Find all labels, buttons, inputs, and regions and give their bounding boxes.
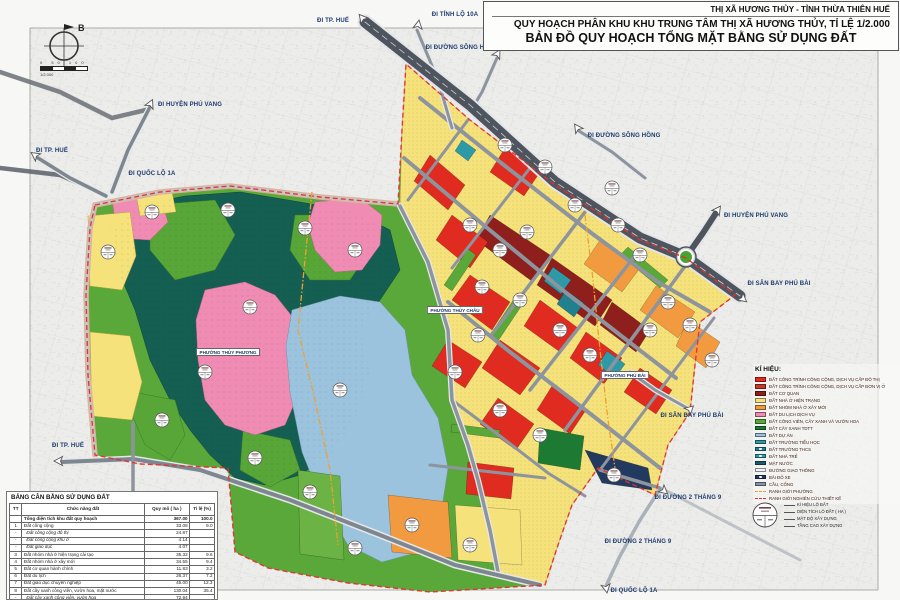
legend-item: ĐƯỜNG GIAO THÔNG — [755, 467, 900, 474]
road-label-song-hong-right: ĐI ĐƯỜNG SÔNG HỒNG — [588, 133, 661, 139]
lot-symbol — [348, 243, 362, 257]
lot-symbol — [471, 328, 485, 342]
lot-symbol — [583, 348, 597, 362]
lot-symbol — [513, 293, 527, 307]
lot-symbol — [661, 295, 675, 309]
lot-symbol — [607, 468, 621, 482]
road-label-phu-vang-top: ĐI HUYỆN PHÚ VANG — [158, 102, 222, 108]
road-label-tp-hue-left: ĐI TP. HUẾ — [36, 148, 68, 154]
legend-title: KÍ HIỆU: — [755, 366, 900, 373]
table-row: 7Đất giáo dục chuyên nghiệp45.0012.3 — [10, 580, 215, 587]
legend-swatch-bridge — [755, 482, 766, 487]
legend-item: ĐẤT DU LỊCH DỊCH VỤ — [755, 411, 900, 418]
road-label-ql1a-left: ĐI QUỐC LỘ 1A — [129, 171, 176, 177]
legend-swatch-parking-icon — [755, 475, 766, 480]
table-row: 6Đất du lịch26.377.2 — [10, 573, 215, 580]
lot-symbol — [643, 323, 657, 337]
legend-swatch — [755, 384, 766, 389]
legend-item: ĐẤT CÔNG TRÌNH CÔNG CỘNG, DỊCH VỤ CẤP ĐƠ… — [755, 383, 900, 390]
table-row: -Đất công cộng đô thị24.87 — [10, 530, 215, 537]
lot-symbol — [298, 221, 312, 235]
legend-item: CẦU, CỐNG — [755, 481, 900, 488]
road-label-ql1a-bottom: ĐI QUỐC LỘ 1A — [611, 588, 658, 594]
lot-symbol-legend: KÍ HIỆU LÔ ĐẤT DIỆN TÍCH LÔ ĐẤT ( HA ) M… — [750, 500, 846, 530]
lot-symbol — [155, 413, 169, 427]
lot-symbol — [198, 365, 212, 379]
legend-item: ĐẤT CÔNG VIÊN, CÂY XANH VÀ VƯỜN HOA — [755, 418, 900, 425]
legend-item: ĐẤT NHÓM NHÀ Ở XÂY MỚI — [755, 404, 900, 411]
lot-symbol — [520, 225, 534, 239]
road-label-tp-hue-top: ĐI TP. HUẾ — [317, 18, 349, 24]
lot-symbol — [493, 403, 507, 417]
lot-symbol — [405, 518, 419, 532]
scale-ticks: 0 50 100 — [40, 60, 88, 65]
lot-symbol — [611, 218, 625, 232]
lot-code-label: KÍ HIỆU LÔ ĐẤT — [784, 502, 846, 509]
table-title: BẢNG CÂN BẰNG SỬ DỤNG ĐẤT — [11, 494, 215, 501]
lot-symbol — [463, 538, 477, 552]
road-label-san-bay-2: ĐI SÂN BAY PHÚ BÀI — [660, 413, 723, 419]
table-row: 8Đất cây xanh công viên, vườn hoa, mặt n… — [10, 587, 215, 594]
province-title: THỊ XÃ HƯƠNG THỦY - TỈNH THỪA THIÊN HUẾ — [492, 5, 890, 17]
road-label-phu-vang-right: ĐI HUYỆN PHÚ VANG — [724, 213, 788, 219]
table-row: -Đất giáo dục4.07 — [10, 544, 215, 551]
legend-item: MẶT NƯỚC — [755, 460, 900, 467]
north-label: B — [78, 23, 85, 33]
lot-symbol — [633, 248, 647, 262]
road-label-2thang9-1: ĐI ĐƯỜNG 2 THÁNG 9 — [655, 495, 722, 501]
legend-swatch — [755, 461, 766, 466]
legend-swatch — [755, 405, 766, 410]
table-header-row: TT Chức năng đất Quy mô ( ha ) Tỉ lệ (%) — [10, 504, 215, 516]
plan-title: QUY HOẠCH PHÂN KHU KHU TRUNG TÂM THỊ XÃ … — [492, 19, 890, 30]
scale-bar: 0 50 100 1/2.000 — [40, 60, 88, 77]
legend-item: ĐẤT NHÀ Ở HIỆN TRẠNG — [755, 397, 900, 404]
legend-item: ĐẤT CÔNG TRÌNH CÔNG CỘNG, DỊCH VỤ CẤP ĐÔ… — [755, 376, 900, 383]
ward-label-thuy-phuong: PHƯỜNG THỦY PHƯƠNG — [196, 348, 260, 356]
title-block: THỊ XÃ HƯƠNG THỦY - TỈNH THỪA THIÊN HUẾ … — [483, 1, 899, 51]
legend-item: ĐẤT NHÀ TRẺ — [755, 453, 900, 460]
legend-item: RANH GIỚI PHƯỜNG — [755, 488, 900, 495]
lot-symbol — [538, 160, 552, 174]
lot-symbol-example — [750, 500, 780, 530]
legend-item: ĐẤT DỰ ÁN — [755, 432, 900, 439]
lot-symbol — [145, 205, 159, 219]
legend-swatch-study-boundary — [755, 498, 766, 499]
road-label-san-bay-1: ĐI SÂN BAY PHÚ BÀI — [747, 281, 810, 287]
road-label-tinh-lo-10a: ĐI TỈNH LỘ 10A — [432, 12, 478, 18]
lot-symbol — [475, 280, 489, 294]
lot-symbol — [348, 541, 362, 555]
ward-label-phu-bai: PHƯỜNG PHÚ BÀI — [601, 371, 649, 379]
legend-swatch-kindergarten-icon — [755, 454, 766, 459]
lot-symbol — [248, 451, 262, 465]
legend-swatch — [755, 426, 766, 431]
legend-swatch-ward-boundary — [755, 491, 766, 492]
road-label-2thang9-2: ĐI ĐƯỜNG 2 THÁNG 9 — [605, 539, 672, 545]
lot-symbol — [605, 181, 619, 195]
legend-swatch — [755, 398, 766, 403]
legend-swatch — [755, 440, 766, 445]
land-use-balance-table: BẢNG CÂN BẰNG SỬ DỤNG ĐẤT TT Chức năng đ… — [6, 491, 218, 600]
legend-item: BÃI ĐỖ XE — [755, 474, 900, 481]
legend: KÍ HIỆU: ĐẤT CÔNG TRÌNH CÔNG CỘNG, DỊCH … — [753, 364, 900, 504]
lot-symbol — [333, 383, 347, 397]
lot-density-label: MẬT ĐỘ XÂY DỰNG — [784, 516, 846, 523]
legend-item: ĐẤT TRƯỜNG THCS — [755, 446, 900, 453]
lot-symbol — [221, 203, 235, 217]
legend-swatch — [755, 433, 766, 438]
lot-symbol — [463, 218, 477, 232]
lot-symbol — [448, 365, 462, 379]
lot-symbol — [101, 245, 115, 259]
table-row: Tổng diện tích khu đất quy hoạch367.0010… — [10, 516, 215, 523]
lot-symbol — [568, 198, 582, 212]
legend-item: ĐẤT CÂY XANH TDTT — [755, 425, 900, 432]
north-flag-icon — [64, 24, 74, 30]
legend-swatch — [755, 419, 766, 424]
table-row: 5Đất cơ quan hành chính11.833.2 — [10, 566, 215, 573]
legend-swatch-road — [755, 468, 766, 473]
legend-swatch — [755, 391, 766, 396]
planning-map-screenshot: { "title_block": { "line1": "THỊ XÃ HƯƠN… — [0, 0, 900, 600]
lot-area-label: DIỆN TÍCH LÔ ĐẤT ( HA ) — [784, 509, 846, 516]
legend-swatch — [755, 377, 766, 382]
legend-swatch-school-icon — [755, 447, 766, 452]
table-row: -Đất cây xanh công viên, vườn hoa72.94 — [10, 595, 215, 600]
lot-symbol — [705, 353, 719, 367]
lot-symbol — [553, 323, 567, 337]
scale-ratio: 1/2.000 — [40, 72, 88, 77]
ward-label-thuy-chau: PHƯỜNG THỦY CHÂU — [427, 306, 483, 314]
lot-symbol — [243, 300, 257, 314]
road-label-tp-hue-bottom: ĐI TP. HUẾ — [52, 443, 84, 449]
legend-swatch — [755, 412, 766, 417]
lot-symbol — [498, 138, 512, 152]
table-row: 4Đất nhóm nhà ở xây mới34.559.4 — [10, 559, 215, 566]
table-row: 1Đất công cộng33.089.0 — [10, 523, 215, 530]
legend-item: ĐẤT CƠ QUAN — [755, 390, 900, 397]
map-title: BẢN ĐỒ QUY HOẠCH TỔNG MẶT BẰNG SỬ DỤNG Đ… — [492, 31, 890, 45]
scale-bar-graphic — [40, 66, 88, 71]
lot-floors-label: TẦNG CAO XÂY DỰNG — [784, 523, 846, 530]
lot-symbol — [683, 318, 697, 332]
legend-item: ĐẤT TRƯỜNG TIỂU HỌC — [755, 439, 900, 446]
lot-symbol — [493, 243, 507, 257]
table-row: -Đất công cộng khu ở4.14 — [10, 537, 215, 544]
lot-symbol — [303, 485, 317, 499]
table-row: 3Đất nhóm nhà ở hiện trạng cải tạo35.329… — [10, 551, 215, 558]
lot-symbol — [533, 428, 547, 442]
